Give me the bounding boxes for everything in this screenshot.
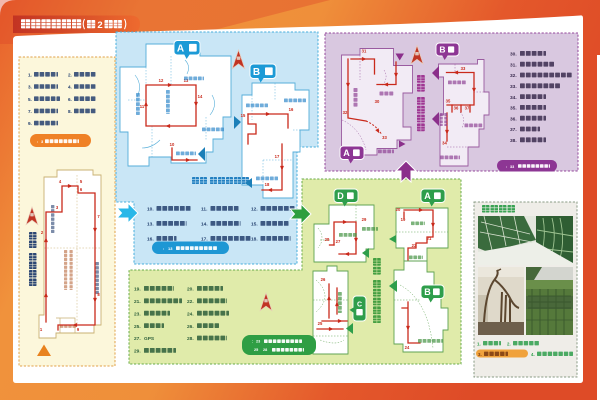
svg-text:32: 32	[343, 110, 348, 115]
svg-text::: :	[506, 165, 507, 169]
svg-text:16: 16	[289, 107, 294, 112]
svg-text:31.: 31.	[510, 62, 517, 68]
svg-text:24: 24	[405, 345, 410, 350]
svg-text:24.: 24.	[187, 311, 194, 317]
svg-text:12: 12	[159, 78, 164, 83]
svg-text:32.: 32.	[510, 73, 517, 79]
svg-text:9.: 9.	[28, 121, 32, 126]
svg-text:33.: 33.	[510, 84, 517, 90]
svg-text:29.: 29.	[134, 349, 141, 355]
svg-text:A: A	[177, 43, 184, 54]
svg-text:22: 22	[412, 243, 417, 248]
svg-text:37.: 37.	[510, 127, 517, 133]
svg-text:16.: 16.	[147, 237, 154, 243]
svg-text:6.: 6.	[68, 97, 72, 102]
svg-text:7.: 7.	[28, 109, 32, 114]
svg-text:17: 17	[275, 154, 280, 159]
svg-text:12.: 12.	[251, 207, 258, 213]
svg-text:4.: 4.	[68, 85, 72, 90]
svg-text:21.: 21.	[134, 299, 141, 305]
svg-text:B: B	[424, 287, 431, 297]
svg-text:33: 33	[382, 135, 387, 140]
svg-text:B: B	[439, 44, 445, 54]
svg-text:20: 20	[396, 207, 401, 212]
svg-text:D: D	[337, 191, 344, 201]
svg-text:A: A	[343, 148, 350, 158]
svg-text:2.: 2.	[507, 342, 511, 347]
svg-text:B: B	[253, 67, 260, 78]
svg-text:18: 18	[265, 182, 270, 187]
svg-text:38.: 38.	[510, 138, 517, 144]
svg-text:20.: 20.	[187, 287, 194, 293]
svg-text:4.: 4.	[531, 352, 535, 357]
svg-text:15: 15	[241, 113, 246, 118]
svg-text:21: 21	[427, 236, 432, 241]
svg-text:1.: 1.	[477, 342, 481, 347]
svg-text:35.: 35.	[510, 106, 517, 112]
svg-text:25: 25	[254, 348, 258, 352]
svg-text::: :	[252, 340, 253, 344]
svg-text:25: 25	[318, 321, 323, 326]
svg-text::: :	[163, 246, 164, 251]
svg-text:23: 23	[256, 340, 260, 344]
svg-text:2.: 2.	[68, 72, 72, 77]
svg-text:30: 30	[375, 99, 380, 104]
svg-text:34: 34	[442, 141, 447, 146]
svg-text::: :	[37, 139, 38, 144]
svg-text:2: 2	[97, 20, 102, 31]
svg-text:31: 31	[362, 49, 367, 54]
svg-text:28: 28	[263, 348, 267, 352]
svg-text:23.: 23.	[134, 311, 141, 317]
svg-text:29: 29	[362, 217, 367, 222]
svg-text:34.: 34.	[510, 95, 517, 101]
svg-text:11: 11	[140, 104, 145, 109]
svg-text:26.: 26.	[187, 324, 194, 330]
svg-text:10.: 10.	[147, 207, 154, 213]
svg-text:1.: 1.	[28, 72, 32, 77]
svg-text:11.: 11.	[201, 207, 207, 213]
svg-text:19.: 19.	[134, 287, 141, 293]
svg-text:27: 27	[336, 239, 341, 244]
svg-text:22.: 22.	[187, 299, 194, 305]
svg-text:13.: 13.	[147, 222, 154, 228]
svg-text:3.: 3.	[478, 352, 482, 357]
svg-text:33: 33	[461, 66, 466, 71]
svg-text:GPS: GPS	[144, 336, 155, 342]
svg-text:26: 26	[321, 277, 326, 282]
svg-text:25.: 25.	[134, 324, 141, 330]
svg-text:30.: 30.	[510, 52, 517, 58]
svg-text:13: 13	[168, 246, 173, 251]
svg-text:15.: 15.	[251, 222, 258, 228]
svg-text:36.: 36.	[510, 116, 517, 122]
svg-text:10: 10	[170, 142, 175, 147]
svg-text:3.: 3.	[28, 85, 32, 90]
svg-text:8.: 8.	[68, 109, 72, 114]
svg-text:28.: 28.	[187, 336, 194, 342]
svg-text:27.: 27.	[134, 336, 141, 342]
svg-text:5.: 5.	[28, 97, 32, 102]
svg-text:19: 19	[401, 217, 406, 222]
svg-text:A: A	[424, 191, 431, 201]
svg-text:28: 28	[325, 237, 330, 242]
svg-text:14: 14	[198, 94, 203, 99]
svg-text:18.: 18.	[251, 237, 258, 243]
svg-text:14.: 14.	[201, 222, 208, 228]
svg-text:36: 36	[454, 106, 459, 111]
svg-text:35: 35	[446, 99, 451, 104]
svg-text:C: C	[357, 302, 362, 309]
svg-text:37: 37	[465, 106, 470, 111]
svg-text:33: 33	[510, 165, 514, 169]
